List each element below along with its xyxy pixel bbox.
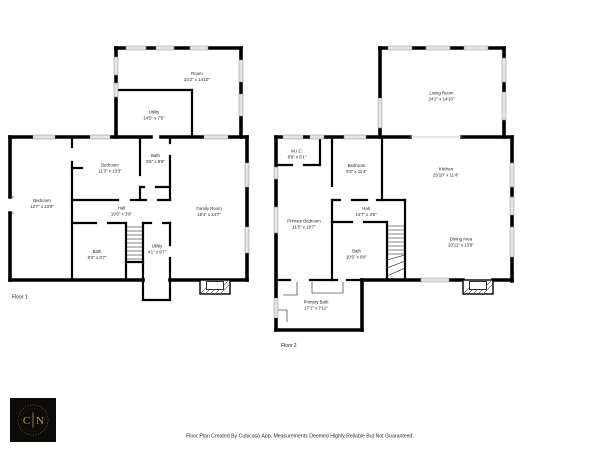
room-name: Bedroom (101, 163, 119, 168)
room-name: Bath (93, 249, 102, 254)
room-name: Family Room (196, 206, 222, 211)
room-name: Bedroom (33, 198, 51, 203)
room-name: Primary Bedroom (287, 219, 321, 224)
floor-plan-canvas: Room 24'2" x 14'10" Utility 14'5" x 7'5"… (0, 0, 600, 450)
fireplace-icon-floor2 (463, 280, 493, 294)
room-name: Hall (362, 206, 369, 211)
room-dims: 15'4" x 24'7" (197, 212, 221, 217)
footer-disclaimer: Floor Plan Created By Cubicasa App. Meas… (186, 434, 414, 440)
room-dims: 14'7" x 3'6" (355, 212, 377, 217)
floor2-windows (274, 46, 514, 318)
room-name: Room (191, 71, 203, 76)
stairs-icon-floor1 (126, 227, 143, 259)
room-name: Hall (118, 206, 125, 211)
room-dims: 11'5" x 19'7" (292, 225, 316, 230)
room-name: Bath (151, 153, 160, 158)
room-dims: 12'7" x 23'0" (30, 204, 54, 209)
room-dims: 24'2" x 14'10" (184, 77, 210, 82)
floor1-plan: Room 24'2" x 14'10" Utility 14'5" x 7'5"… (8, 46, 249, 301)
room-name: Bedroom (348, 163, 366, 168)
room-dims: 11'3" x 13'3" (98, 169, 122, 174)
room-name: Utility (149, 110, 160, 115)
room-dims: 19'6" x 3'6" (111, 212, 133, 217)
room-name: Dining Area (450, 237, 473, 242)
floor2-plan: Living Room 24'2" x 14'10" W.I.C. 8'8" x… (274, 46, 514, 349)
room-dims: 9'3" x 9'7" (88, 255, 107, 260)
room-dims: 14'5" x 7'5" (143, 116, 165, 121)
room-dims: 17'1" x 7'11" (304, 306, 328, 311)
room-dims: 10'5" x 9'8" (346, 255, 368, 260)
room-name: Bath (352, 249, 361, 254)
floor2-interior-walls (276, 137, 405, 322)
stairs-icon-floor2 (387, 226, 405, 276)
room-name: W.I.C. (291, 149, 303, 154)
brand-logo: C N (10, 398, 56, 442)
room-dims: 5'5" x 9'8" (146, 159, 165, 164)
room-name: Kitchen (439, 167, 454, 172)
logo-letter-right: N (36, 415, 44, 427)
room-name: Utility (152, 244, 163, 249)
room-dims: 25'10" x 11'4" (433, 173, 459, 178)
fireplace-icon-floor1 (200, 280, 230, 294)
room-dims: 20'11" x 13'9" (448, 243, 474, 248)
floor2-label: Floor 2 (281, 343, 297, 349)
room-dims: 9'3" x 11'4" (346, 169, 367, 174)
floor1-label: Floor 1 (12, 295, 28, 301)
logo-letter-left: C (23, 415, 30, 427)
room-dims: 4'1" x 9'7" (148, 250, 167, 255)
room-name: Primary Bath (304, 300, 329, 305)
floor-plan-document: Room 24'2" x 14'10" Utility 14'5" x 7'5"… (0, 0, 600, 450)
room-dims: 8'8" x 5'1" (288, 155, 307, 160)
room-dims: 24'2" x 14'10" (429, 97, 455, 102)
room-name: Living Room (430, 91, 454, 96)
